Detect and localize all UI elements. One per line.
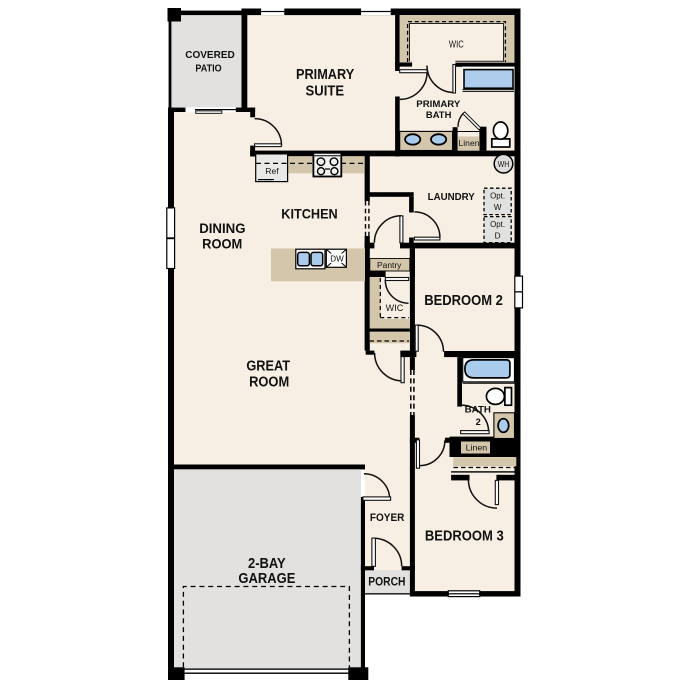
svg-text:D: D: [495, 231, 501, 240]
svg-text:Pantry: Pantry: [377, 261, 401, 270]
svg-text:WH: WH: [498, 160, 510, 169]
svg-text:ROOM: ROOM: [249, 374, 289, 390]
svg-text:Ref: Ref: [265, 166, 279, 176]
svg-text:2: 2: [476, 417, 481, 427]
svg-text:ROOM: ROOM: [202, 237, 242, 253]
svg-text:Linen: Linen: [459, 138, 480, 148]
svg-text:GREAT: GREAT: [246, 359, 290, 375]
svg-text:COVERED: COVERED: [185, 50, 235, 61]
svg-text:BATH: BATH: [465, 404, 492, 414]
svg-text:GARAGE: GARAGE: [238, 571, 295, 587]
svg-text:W: W: [494, 203, 502, 212]
svg-text:Opt.: Opt.: [490, 220, 505, 229]
svg-text:PRIMARY: PRIMARY: [416, 99, 461, 109]
svg-text:WIC: WIC: [386, 303, 404, 313]
svg-text:KITCHEN: KITCHEN: [281, 207, 337, 222]
svg-text:BATH: BATH: [426, 110, 452, 120]
svg-text:BEDROOM 3: BEDROOM 3: [425, 529, 504, 545]
svg-text:DINING: DINING: [199, 221, 245, 237]
svg-text:WIC: WIC: [449, 39, 464, 50]
svg-text:FOYER: FOYER: [370, 512, 405, 524]
svg-text:PORCH: PORCH: [368, 576, 405, 589]
svg-text:PRIMARY: PRIMARY: [296, 66, 354, 83]
svg-text:DW: DW: [330, 255, 344, 264]
svg-text:PATIO: PATIO: [195, 63, 221, 74]
svg-text:LAUNDRY: LAUNDRY: [428, 192, 475, 203]
svg-text:Linen: Linen: [466, 442, 488, 452]
svg-text:Opt.: Opt.: [490, 192, 505, 201]
svg-text:SUITE: SUITE: [306, 83, 345, 100]
svg-text:2-BAY: 2-BAY: [248, 556, 286, 572]
svg-text:BEDROOM 2: BEDROOM 2: [424, 293, 503, 309]
